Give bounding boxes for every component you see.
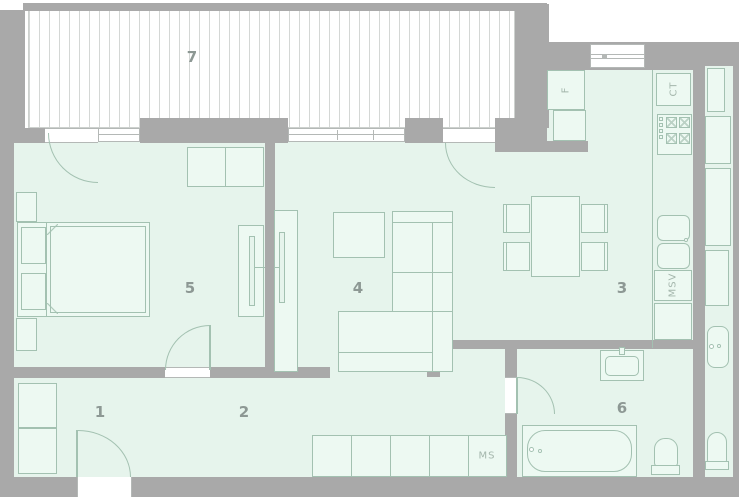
ms-label: MS (479, 451, 496, 462)
dining-chair-back (506, 205, 507, 232)
entrance-door-opening (77, 477, 132, 497)
wall-bathroom-top (427, 340, 693, 349)
neighbor-toilet-bowl (707, 432, 727, 463)
hall-wardrobe (18, 428, 57, 474)
living-window (288, 128, 405, 142)
kitchen-cabinet (654, 303, 692, 340)
bathtub-tap-icon (529, 447, 534, 452)
sofa-cushion-line (339, 352, 432, 353)
wall-bedroom-hall-left (14, 367, 165, 378)
pillow (21, 227, 46, 264)
blanket-fold-icon (47, 224, 58, 235)
bedroom-window-mullion (99, 134, 139, 135)
neighbor-toilet-tank (705, 461, 729, 470)
neighbor-cabinet (705, 250, 729, 306)
nightstand (16, 192, 37, 222)
toilet-bowl (654, 438, 678, 467)
living-window-mullion (289, 134, 404, 135)
kitchen-sink-bowl (657, 243, 690, 269)
kitchen-sink-tap-icon (684, 238, 688, 242)
washbasin-inner (605, 356, 639, 376)
hall-wardrobe (18, 383, 57, 428)
burner-icon (679, 117, 690, 128)
blanket-fold-icon (47, 303, 58, 314)
ct-label: CT (669, 81, 680, 96)
bedroom-tv-bracket (255, 267, 265, 268)
sofa-cushion-line (393, 272, 452, 273)
living-tv-bracket (274, 267, 280, 268)
entrance-door-leaf (76, 430, 78, 477)
burner-icon (679, 133, 690, 144)
wall-stub-living-right (405, 118, 443, 143)
kitchen-window (590, 44, 645, 68)
living-window-mullion (337, 130, 338, 140)
wall-bedroom-hall-right (210, 367, 330, 378)
room-label-5: 5 (185, 279, 195, 297)
msv-label: MSV (668, 273, 679, 298)
living-door-opening (443, 128, 495, 143)
bathroom-door-leaf (516, 377, 518, 414)
hall-closet-cell (351, 435, 391, 477)
room-label-2: 2 (239, 403, 249, 421)
burner-icon (666, 133, 677, 144)
room-label-1: 1 (95, 403, 105, 421)
nightstand (16, 318, 37, 351)
wall-stub-bedroom-left (25, 128, 45, 143)
bedroom-door-leaf (209, 325, 211, 370)
dining-table (531, 196, 580, 277)
hall-closet-cell (312, 435, 352, 477)
living-tv-cabinet (274, 210, 298, 372)
kitchen-window-mullion (591, 54, 644, 55)
dining-chair-back (604, 243, 605, 270)
dining-chair (503, 242, 530, 271)
burner-icon (666, 117, 677, 128)
room-label-7: 7 (187, 48, 197, 66)
toilet-tank (651, 465, 680, 475)
kitchen-window-mullion (602, 55, 607, 59)
wall-left-lower (0, 140, 14, 497)
wall-right-outer (733, 42, 739, 497)
bedroom-closet-divider (225, 148, 226, 186)
neighbor-cabinet (707, 68, 725, 112)
stove-knob-icon (659, 135, 663, 139)
balcony-railing (23, 3, 547, 11)
bed-blanket (46, 222, 150, 317)
stove-knob-icon (659, 129, 663, 133)
sofa-cushion-line (432, 222, 433, 371)
sofa-bottom-section (338, 311, 453, 372)
kitchen-cabinet (553, 110, 586, 141)
floor-plan: 7 5 4 3 1 2 6 MS MSV CT F (0, 0, 739, 501)
kitchen-counter-edge (652, 70, 653, 348)
fridge-label: F (561, 87, 572, 94)
bedroom-window (98, 128, 140, 142)
room-label-6: 6 (617, 399, 627, 417)
balcony-decking (28, 10, 515, 128)
hall-closet-cell (390, 435, 430, 477)
pillow (21, 273, 46, 310)
room-label-3: 3 (617, 279, 627, 297)
neighbor-sink-tap-icon (709, 344, 714, 349)
kitchen-window-mullion (591, 58, 644, 59)
neighbor-cabinet (705, 116, 731, 164)
neighbor-cabinet (705, 168, 731, 246)
dining-chair (503, 204, 530, 233)
living-window-mullion (373, 130, 374, 140)
wall-right-inner (693, 42, 705, 477)
bathtub-tap-icon (538, 449, 542, 453)
washbasin-tap-icon (619, 347, 625, 355)
bathtub-inner (527, 430, 632, 472)
hall-closet-cell (429, 435, 469, 477)
coffee-table (333, 212, 385, 258)
neighbor-sink-tap-icon (717, 344, 721, 348)
wall-bathroom-left-upper (505, 348, 517, 377)
room-label-4: 4 (353, 279, 363, 297)
dining-chair-back (604, 205, 605, 232)
wall-left-upper (0, 10, 25, 143)
stove-knob-icon (659, 117, 663, 121)
stove-knob-icon (659, 123, 663, 127)
sofa-cushion-line (393, 222, 452, 223)
bedroom-tv (249, 236, 255, 306)
wall-block-kitchen-corner (495, 118, 547, 152)
dining-chair-back (506, 243, 507, 270)
